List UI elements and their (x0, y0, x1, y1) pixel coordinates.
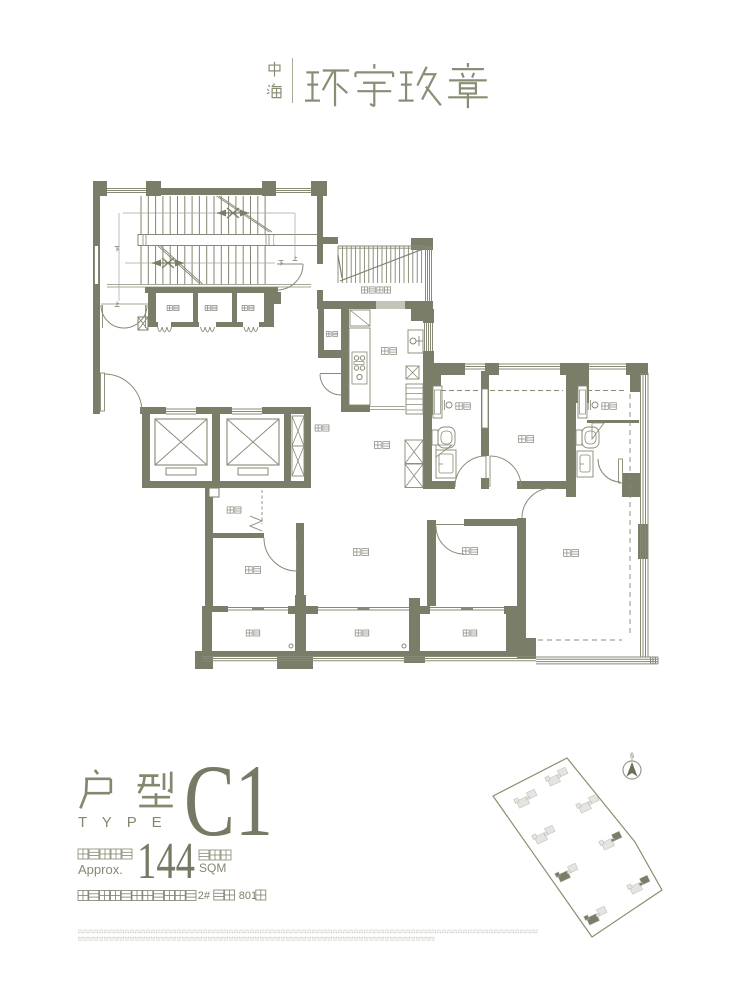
svg-text:SQM: SQM (199, 861, 226, 875)
svg-text:144: 144 (137, 833, 195, 890)
svg-text:801: 801 (239, 890, 257, 902)
svg-text:C1: C1 (184, 744, 273, 858)
svg-text:Approx.: Approx. (78, 862, 123, 877)
svg-text:T Y P E: T Y P E (78, 814, 167, 831)
svg-text:2#: 2# (198, 890, 211, 902)
